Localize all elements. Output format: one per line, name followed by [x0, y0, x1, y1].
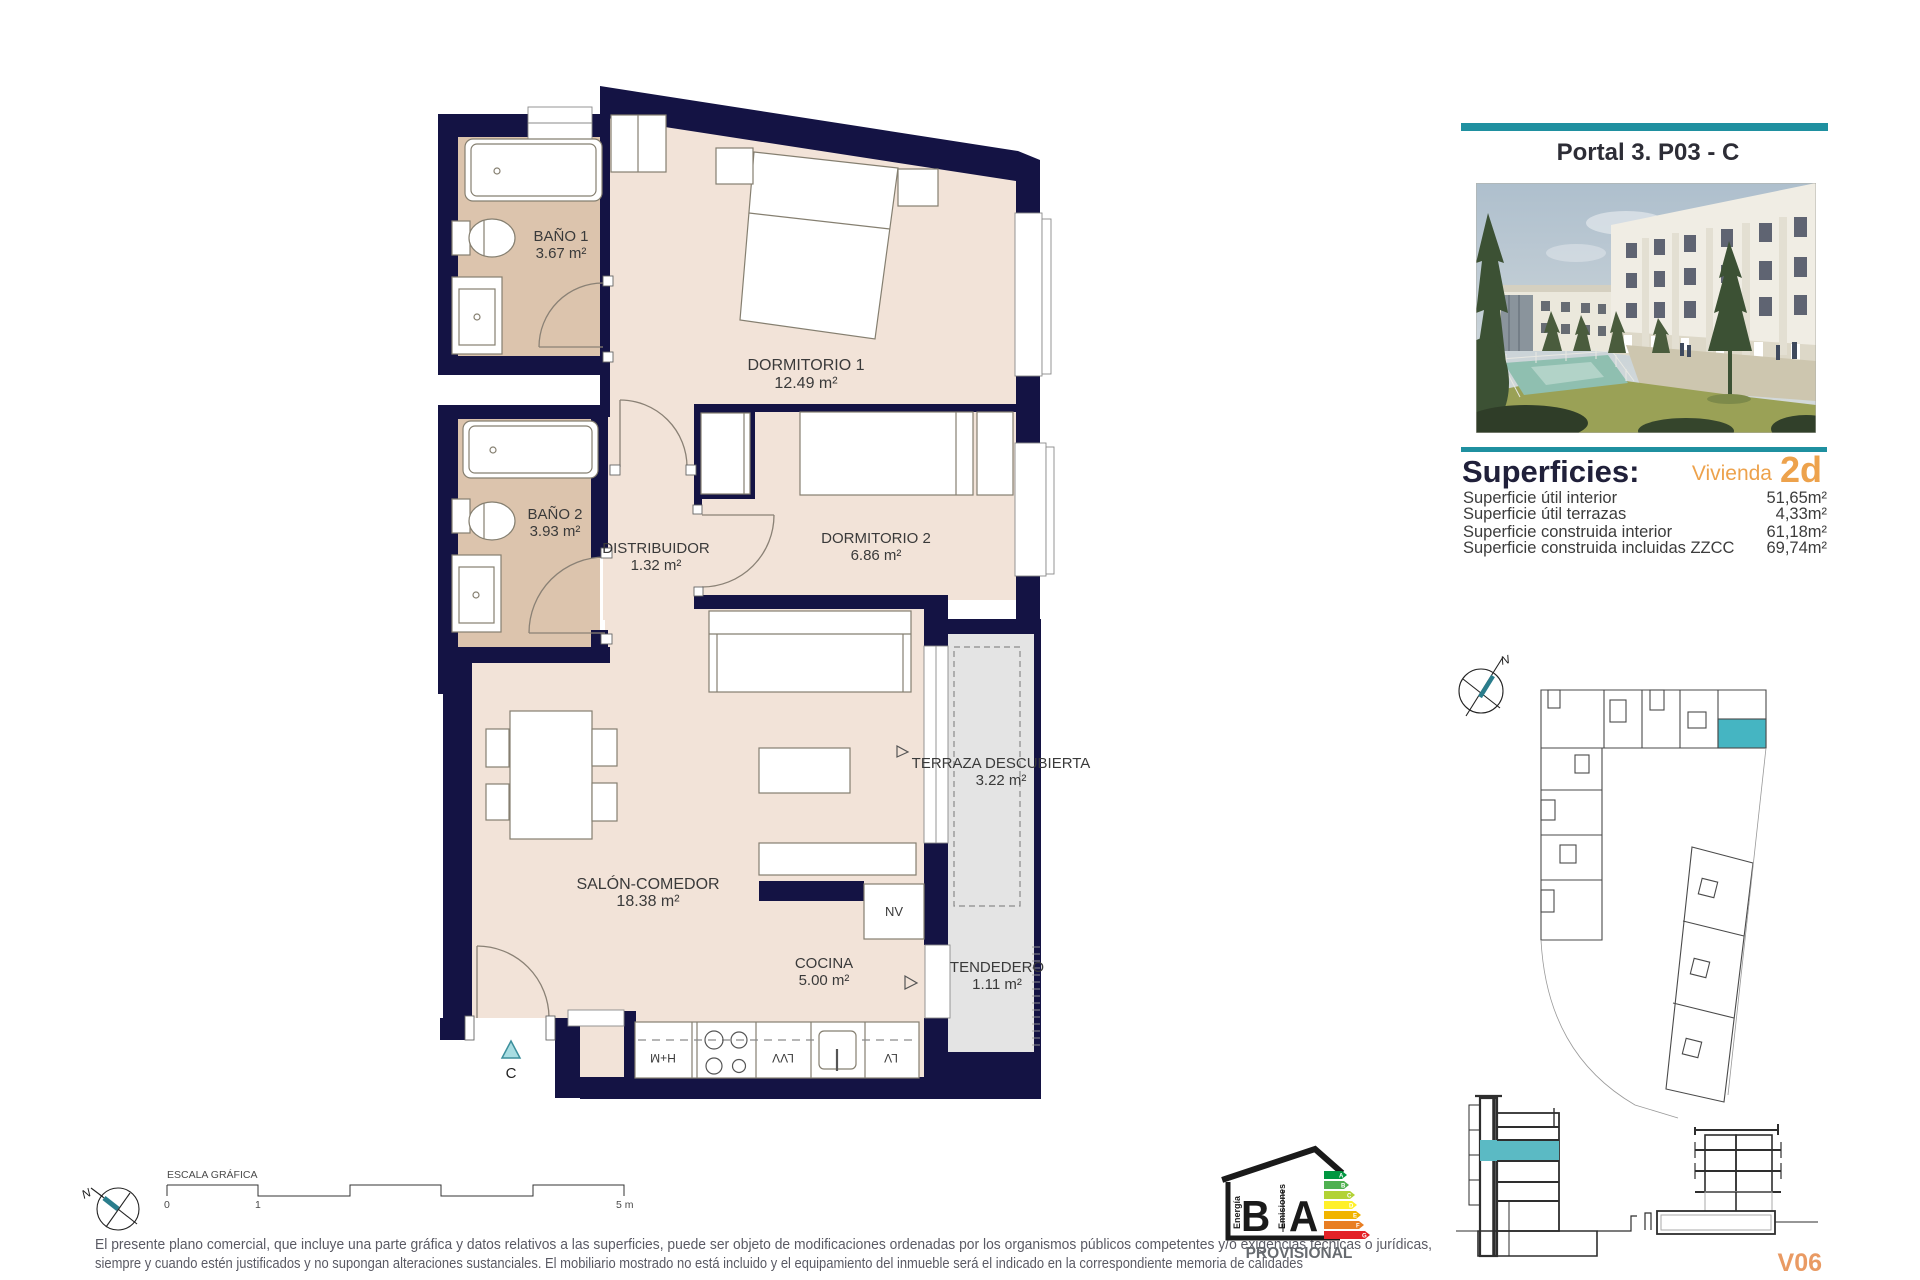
svg-text:BAÑO 2: BAÑO 2 — [527, 506, 582, 523]
svg-text:3.67 m²: 3.67 m² — [536, 245, 587, 262]
svg-text:6.86 m²: 6.86 m² — [851, 547, 902, 564]
svg-text:H+M: H+M — [650, 1051, 676, 1065]
svg-text:PROVISIONAL: PROVISIONAL — [1246, 1245, 1353, 1262]
svg-text:Superficie construida incluida: Superficie construida incluidas ZZCC — [1463, 539, 1735, 557]
svg-text:A: A — [1289, 1191, 1318, 1240]
svg-text:DORMITORIO 2: DORMITORIO 2 — [821, 530, 931, 547]
svg-text:2d: 2d — [1780, 449, 1822, 490]
svg-text:A: A — [1339, 1174, 1344, 1180]
svg-text:0: 0 — [164, 1199, 170, 1211]
svg-text:D: D — [1349, 1204, 1354, 1210]
svg-text:5 m: 5 m — [616, 1199, 634, 1211]
svg-text:B: B — [1241, 1191, 1270, 1240]
svg-text:V06: V06 — [1778, 1249, 1822, 1277]
svg-text:siempre y cuando estén justifi: siempre y cuando estén justificados y no… — [95, 1256, 1303, 1272]
svg-text:DISTRIBUIDOR: DISTRIBUIDOR — [602, 540, 710, 557]
svg-text:3.93 m²: 3.93 m² — [530, 523, 581, 540]
svg-text:Superficie útil terrazas: Superficie útil terrazas — [1463, 505, 1626, 523]
svg-text:4,33m²: 4,33m² — [1776, 505, 1828, 523]
svg-text:12.49 m²: 12.49 m² — [774, 375, 838, 392]
svg-text:LV: LV — [884, 1051, 898, 1065]
svg-text:LVV: LVV — [772, 1051, 794, 1065]
svg-text:B: B — [1341, 1184, 1346, 1190]
svg-text:F: F — [1356, 1224, 1360, 1230]
svg-text:TENDEDERO: TENDEDERO — [950, 959, 1044, 976]
svg-text:COCINA: COCINA — [795, 955, 853, 972]
svg-text:Emisiones: Emisiones — [1277, 1184, 1287, 1229]
svg-text:3.22 m²: 3.22 m² — [976, 772, 1027, 789]
svg-text:N: N — [1499, 652, 1511, 668]
svg-text:18.38 m²: 18.38 m² — [616, 893, 680, 910]
svg-text:C: C — [506, 1065, 517, 1082]
svg-text:TERRAZA DESCUBIERTA: TERRAZA DESCUBIERTA — [912, 755, 1091, 772]
svg-text:1.11 m²: 1.11 m² — [972, 976, 1022, 993]
svg-text:C: C — [1347, 1194, 1352, 1200]
svg-text:NV: NV — [885, 904, 903, 919]
svg-text:BAÑO 1: BAÑO 1 — [533, 228, 588, 245]
svg-text:Portal 3. P03 - C: Portal 3. P03 - C — [1557, 139, 1740, 166]
svg-text:69,74m²: 69,74m² — [1766, 539, 1827, 557]
svg-text:E: E — [1353, 1214, 1357, 1220]
svg-text:DORMITORIO 1: DORMITORIO 1 — [747, 357, 864, 374]
svg-text:Superficies:: Superficies: — [1462, 454, 1639, 489]
svg-text:1.32 m²: 1.32 m² — [631, 557, 682, 574]
svg-text:SALÓN-COMEDOR: SALÓN-COMEDOR — [576, 874, 719, 893]
svg-text:ESCALA GRÁFICA: ESCALA GRÁFICA — [167, 1168, 257, 1181]
svg-text:Energía: Energía — [1232, 1195, 1242, 1229]
svg-text:5.00 m²: 5.00 m² — [799, 972, 850, 989]
svg-text:1: 1 — [255, 1199, 261, 1211]
svg-text:Vivienda: Vivienda — [1692, 462, 1772, 485]
svg-text:G: G — [1362, 1234, 1367, 1240]
